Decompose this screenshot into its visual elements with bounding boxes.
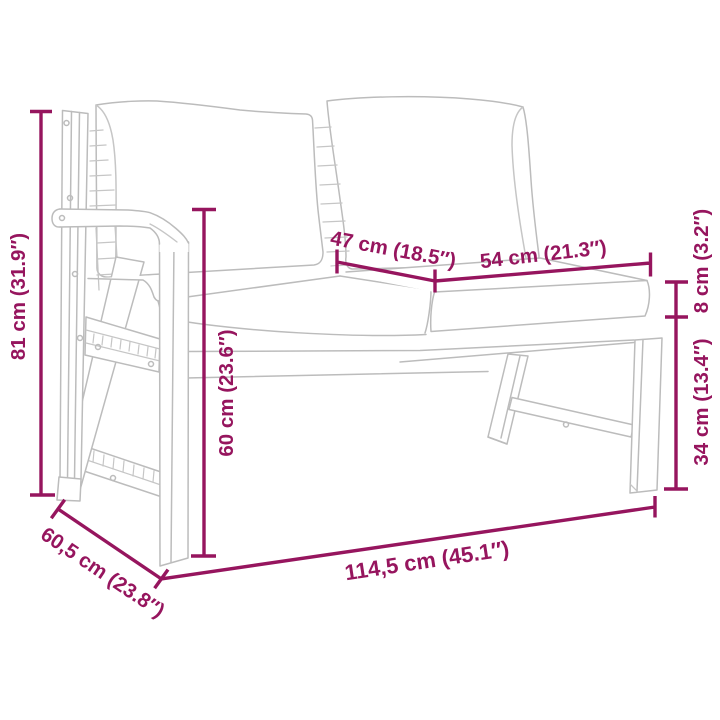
svg-text:60 cm (23.6″): 60 cm (23.6″) [215, 329, 238, 456]
svg-text:8 cm (3.2″): 8 cm (3.2″) [690, 209, 713, 313]
svg-text:81 cm (31.9″): 81 cm (31.9″) [7, 233, 30, 360]
svg-text:34 cm (13.4″): 34 cm (13.4″) [690, 338, 713, 465]
